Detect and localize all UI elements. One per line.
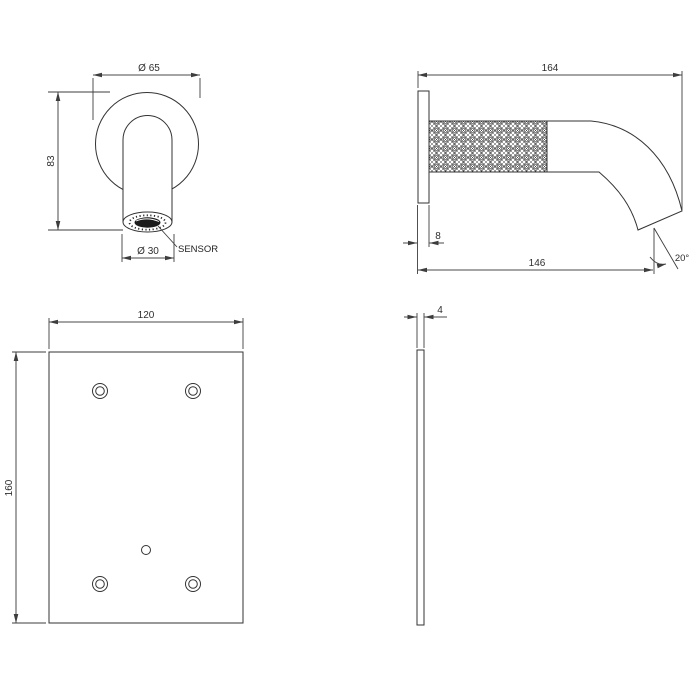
mounting-plate [49,352,243,623]
plate-front-view: 120 160 [4,310,243,623]
wall-flange-side [418,91,429,203]
knurled-section [429,121,547,172]
mounting-plate-side [417,350,424,625]
front-view: Ø 65 83 Ø 30 SENSOR [46,63,218,262]
dim-height-label: 83 [46,155,57,167]
dim-plate-height-label: 160 [4,479,15,496]
sensor-label: SENSOR [178,244,218,255]
plate-side-view: 4 [404,305,447,625]
dim-plate-thickness-label: 4 [437,305,443,316]
technical-drawing-canvas: Ø 65 83 Ø 30 SENSOR 164 8 [0,0,700,700]
dim-wall-plate-thickness-label: 8 [435,231,441,242]
side-view: 164 8 146 20° [403,63,689,274]
dim-outlet-angle-label: 20° [675,253,690,264]
technical-drawing-page: Ø 65 83 Ø 30 SENSOR 164 8 [0,0,700,700]
spout-tube-front [123,115,172,222]
dim-outlet-diameter-label: Ø 30 [137,246,159,257]
angle-arc-arrow [650,257,666,264]
dim-flange-diameter-label: Ø 65 [138,63,160,74]
dim-spout-reach-label: 146 [529,258,546,269]
dim-plate-width-label: 120 [138,310,155,321]
dim-total-length-label: 164 [542,63,559,74]
